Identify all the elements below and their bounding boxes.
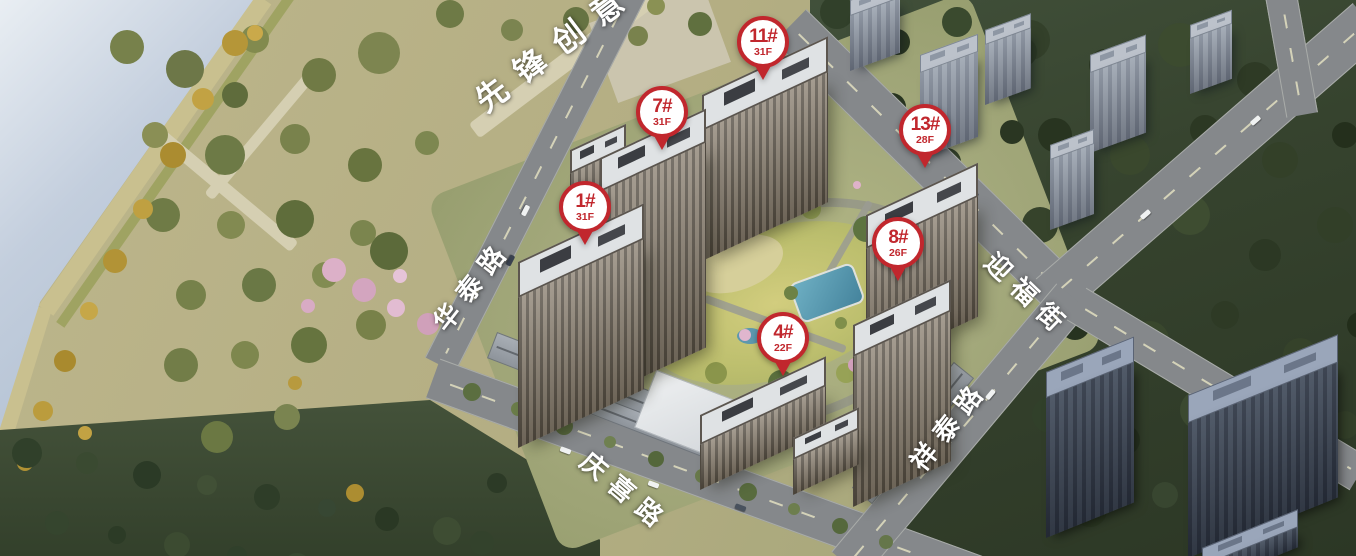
marker-circle: 13# 28F xyxy=(899,104,951,156)
marker-floors: 31F xyxy=(576,212,594,223)
marker-floors: 22F xyxy=(774,343,792,354)
marker-circle: 8# 26F xyxy=(872,217,924,269)
building-marker-13[interactable]: 13# 28F xyxy=(897,104,953,168)
marker-id: 8# xyxy=(888,228,907,247)
context-building xyxy=(1050,129,1094,230)
marker-id: 4# xyxy=(773,323,792,342)
context-building xyxy=(1090,35,1146,153)
marker-floors: 31F xyxy=(754,47,772,58)
park-trees xyxy=(436,0,464,28)
masterplan-canvas: 先锋创意 华泰路 迎福街 祥泰路 庆喜路 11# 31F 7# 31F 13# … xyxy=(0,0,1356,556)
building-marker-4[interactable]: 4# 22F xyxy=(755,312,811,376)
marker-pin-tail-icon xyxy=(774,360,792,376)
south-trees xyxy=(12,438,42,468)
marker-circle: 4# 22F xyxy=(757,312,809,364)
building-marker-11[interactable]: 11# 31F xyxy=(735,16,791,80)
marker-pin-tail-icon xyxy=(916,152,934,168)
building-marker-8[interactable]: 8# 26F xyxy=(870,217,926,281)
marker-circle: 1# 31F xyxy=(559,181,611,233)
marker-circle: 11# 31F xyxy=(737,16,789,68)
marker-floors: 31F xyxy=(653,117,671,128)
riverside-golden-trees xyxy=(222,30,248,56)
marker-pin-tail-icon xyxy=(653,134,671,150)
marker-circle: 7# 31F xyxy=(636,86,688,138)
marker-id: 13# xyxy=(911,115,940,134)
marker-pin-tail-icon xyxy=(754,64,772,80)
marker-id: 1# xyxy=(575,192,594,211)
building-marker-1[interactable]: 1# 31F xyxy=(557,181,613,245)
marker-id: 7# xyxy=(652,97,671,116)
marker-pin-tail-icon xyxy=(576,229,594,245)
park-trees xyxy=(110,30,144,64)
street-trees xyxy=(463,383,481,401)
marker-id: 11# xyxy=(749,27,777,46)
building-marker-7[interactable]: 7# 31F xyxy=(634,86,690,150)
marker-floors: 26F xyxy=(889,248,907,259)
blossom-trees xyxy=(322,258,346,282)
marker-floors: 28F xyxy=(916,135,934,146)
marker-pin-tail-icon xyxy=(889,265,907,281)
context-building-dark xyxy=(1046,336,1134,538)
